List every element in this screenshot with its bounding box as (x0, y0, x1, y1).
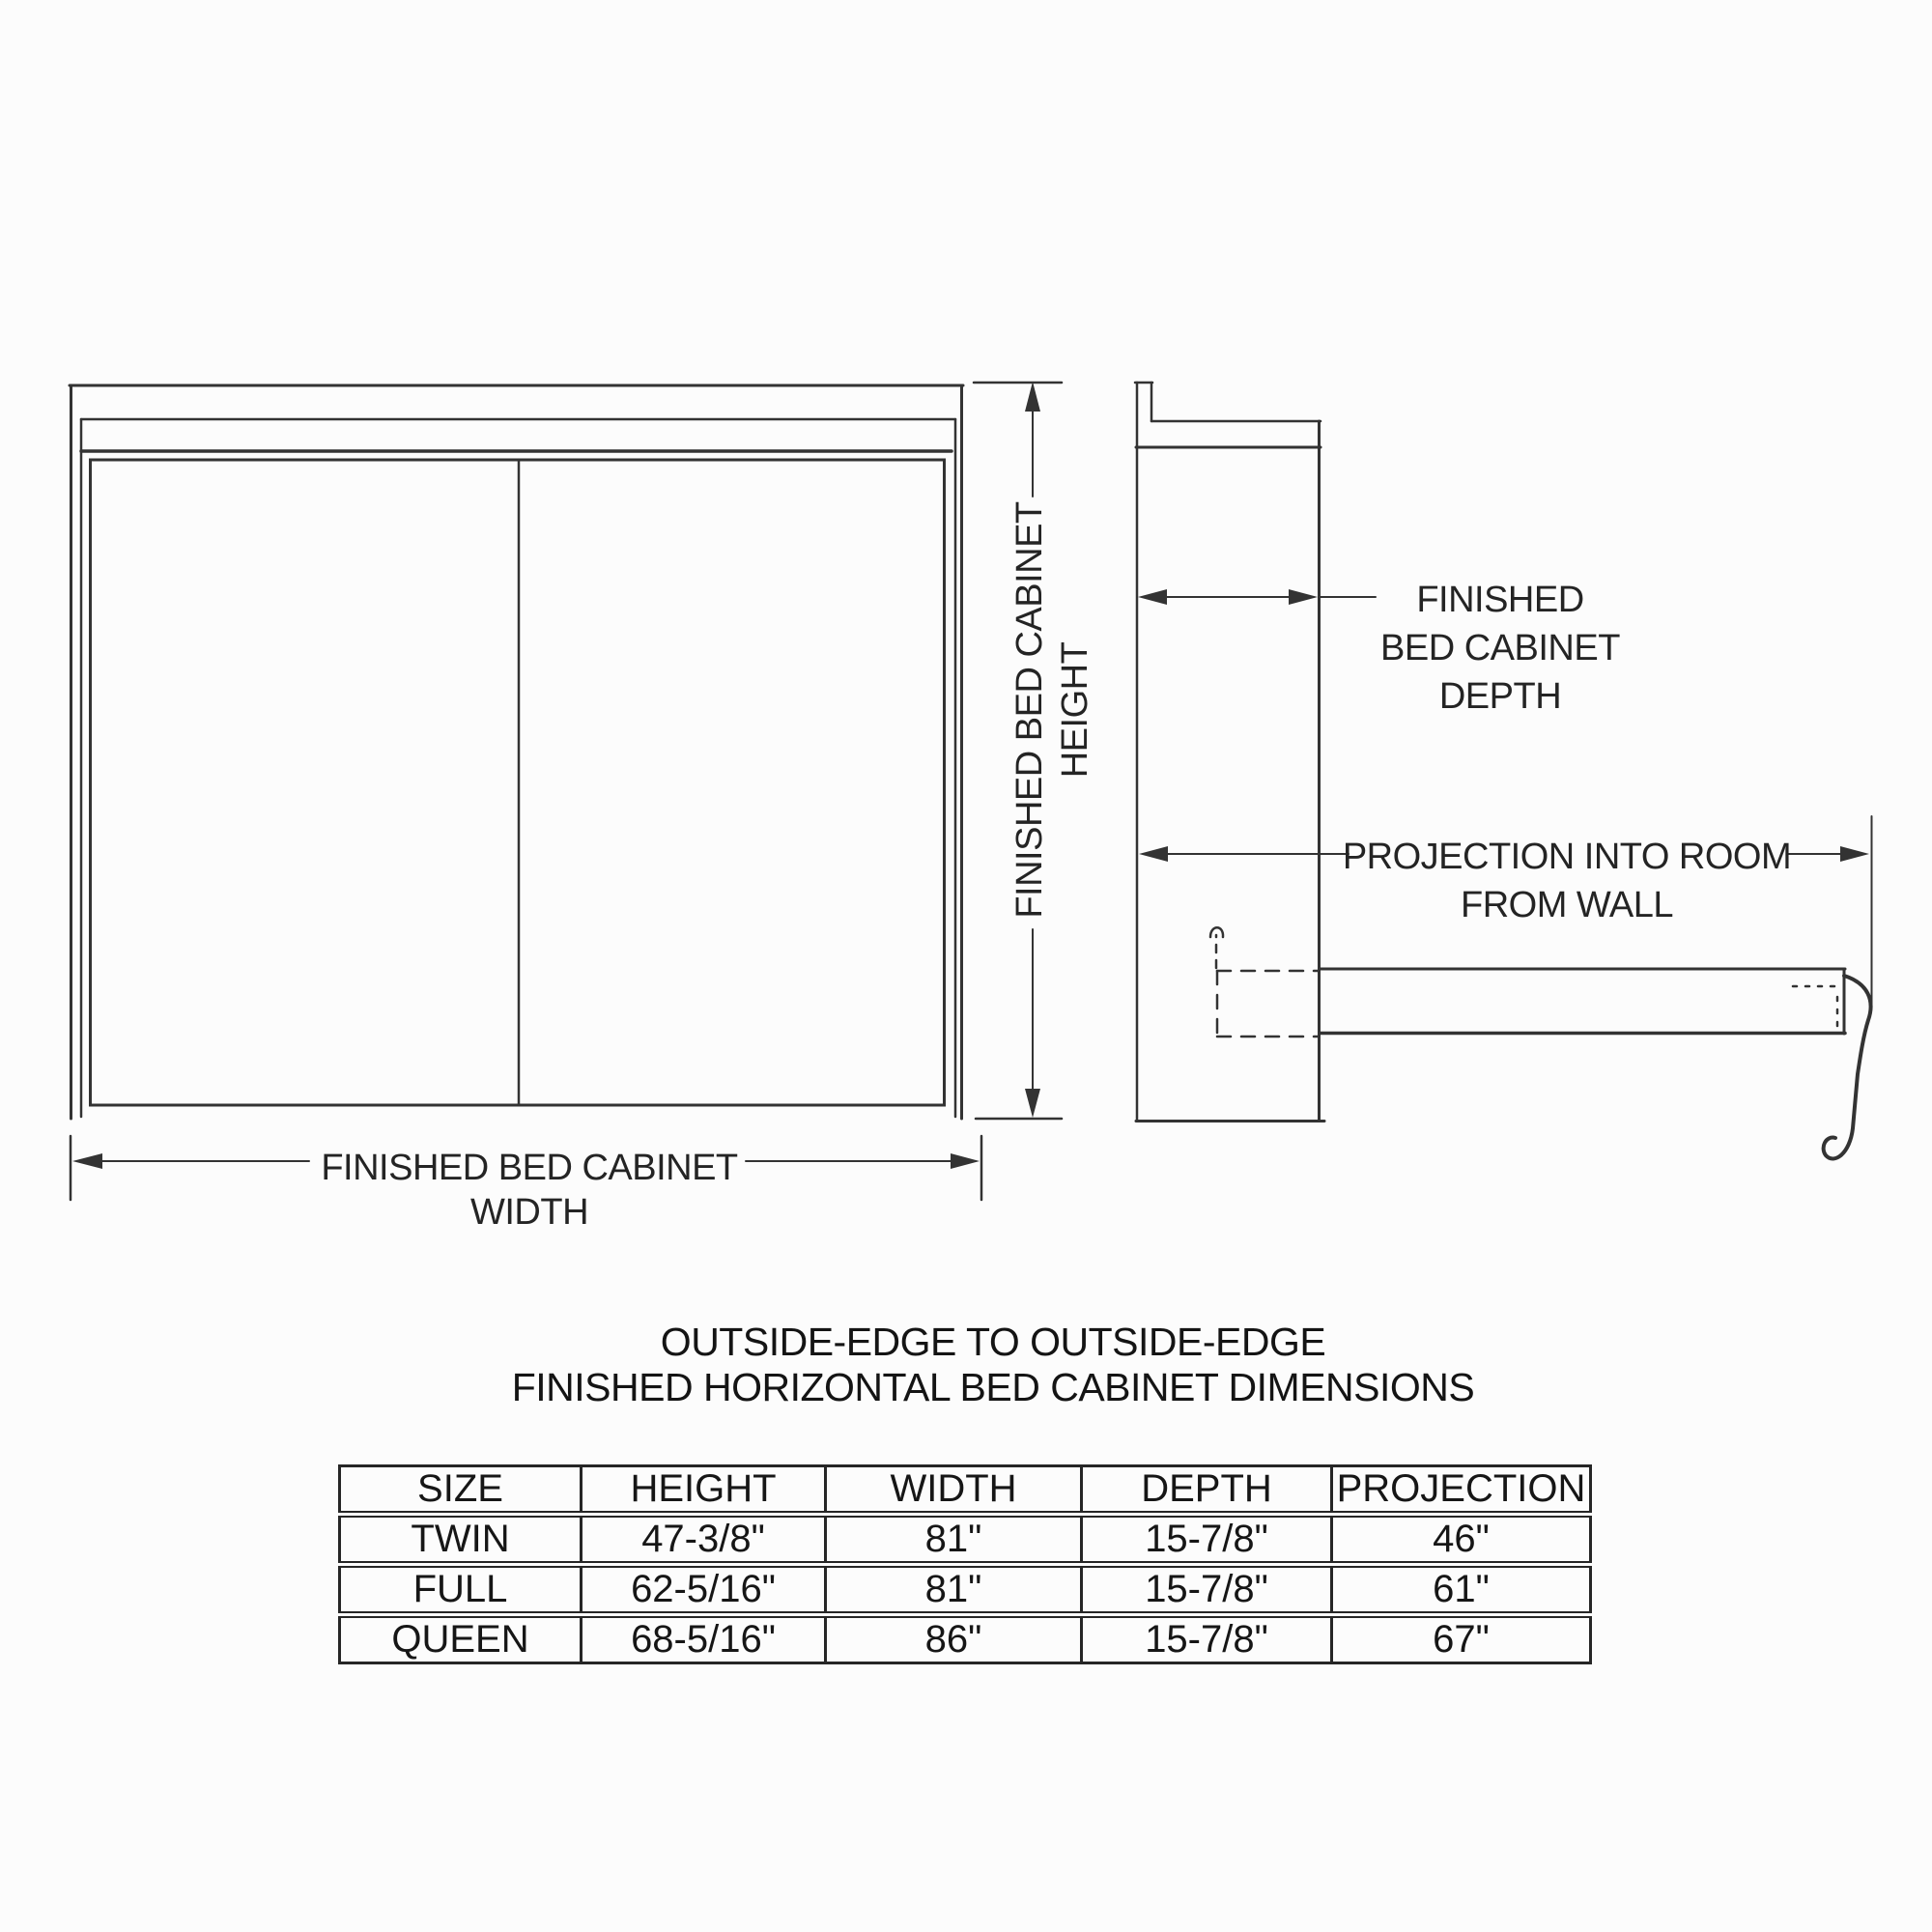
cell-depth: 15-7/8" (1082, 1615, 1332, 1663)
cell-height: 47-3/8" (582, 1515, 826, 1565)
cell-size: FULL (340, 1565, 582, 1615)
cell-size: TWIN (340, 1515, 582, 1565)
table-row-queen: QUEEN 68-5/16" 86" 15-7/8" 67" (340, 1615, 1591, 1663)
title-line1: OUTSIDE-EDGE TO OUTSIDE-EDGE (317, 1320, 1669, 1365)
fold-out-leg-hook (1824, 976, 1871, 1159)
table-header-row: SIZE HEIGHT WIDTH DEPTH PROJECTION (340, 1466, 1591, 1515)
height-dimension-label: FINISHED BED CABINET HEIGHT (1008, 488, 1098, 932)
cell-size: QUEEN (340, 1615, 582, 1663)
table-row-full: FULL 62-5/16" 81" 15-7/8" 61" (340, 1565, 1591, 1615)
arrowhead-left-icon (72, 1153, 102, 1169)
cell-projection: 61" (1332, 1565, 1591, 1615)
arrowhead-down-icon (1025, 1089, 1040, 1118)
projection-dimension-label: PROJECTION INTO ROOM FROM WALL (1316, 833, 1818, 929)
width-label-line1: FINISHED BED CABINET (307, 1146, 752, 1190)
depth-label-line3: DEPTH (1326, 672, 1674, 721)
folded-bed-hidden-lines (1210, 927, 1319, 1037)
width-dimension-label: FINISHED BED CABINET WIDTH (307, 1146, 752, 1235)
projection-label-line2: FROM WALL (1316, 881, 1818, 929)
arrowhead-right-icon (951, 1153, 980, 1169)
col-header-width: WIDTH (826, 1466, 1082, 1515)
height-label-line2: HEIGHT (1053, 488, 1098, 932)
depth-label-line1: FINISHED (1326, 576, 1674, 624)
height-label-line1: FINISHED BED CABINET (1008, 488, 1053, 932)
cell-height: 68-5/16" (582, 1615, 826, 1663)
title-line2: FINISHED HORIZONTAL BED CABINET DIMENSIO… (317, 1365, 1669, 1410)
cell-width: 86" (826, 1615, 1082, 1663)
cell-projection: 46" (1332, 1515, 1591, 1565)
arrowhead-up-icon (1025, 382, 1040, 412)
arrowhead-right-icon (1289, 589, 1318, 605)
cell-depth: 15-7/8" (1082, 1565, 1332, 1615)
arrowhead-left-icon (1139, 846, 1168, 862)
blueprint-canvas: FINISHED BED CABINET HEIGHT FINISHED BED… (0, 0, 1932, 1932)
arrowhead-left-icon (1138, 589, 1167, 605)
arrowhead-right-icon (1840, 846, 1869, 862)
cell-depth: 15-7/8" (1082, 1515, 1332, 1565)
width-label-line2: WIDTH (307, 1190, 752, 1235)
projection-label-line1: PROJECTION INTO ROOM (1316, 833, 1818, 881)
table-row-twin: TWIN 47-3/8" 81" 15-7/8" 46" (340, 1515, 1591, 1565)
col-header-projection: PROJECTION (1332, 1466, 1591, 1515)
bed-platform (1320, 969, 1871, 1159)
depth-dimension-label: FINISHED BED CABINET DEPTH (1326, 576, 1674, 721)
cell-projection: 67" (1332, 1615, 1591, 1663)
front-view (70, 385, 963, 1119)
cell-width: 81" (826, 1515, 1082, 1565)
door-frame (91, 460, 945, 1105)
side-view (1135, 383, 1324, 1122)
depth-label-line2: BED CABINET (1326, 624, 1674, 672)
col-header-height: HEIGHT (582, 1466, 826, 1515)
col-header-size: SIZE (340, 1466, 582, 1515)
col-header-depth: DEPTH (1082, 1466, 1332, 1515)
dimensions-table: SIZE HEIGHT WIDTH DEPTH PROJECTION TWIN … (338, 1464, 1592, 1664)
cell-height: 62-5/16" (582, 1565, 826, 1615)
table-title: OUTSIDE-EDGE TO OUTSIDE-EDGE FINISHED HO… (317, 1320, 1669, 1410)
cell-width: 81" (826, 1565, 1082, 1615)
